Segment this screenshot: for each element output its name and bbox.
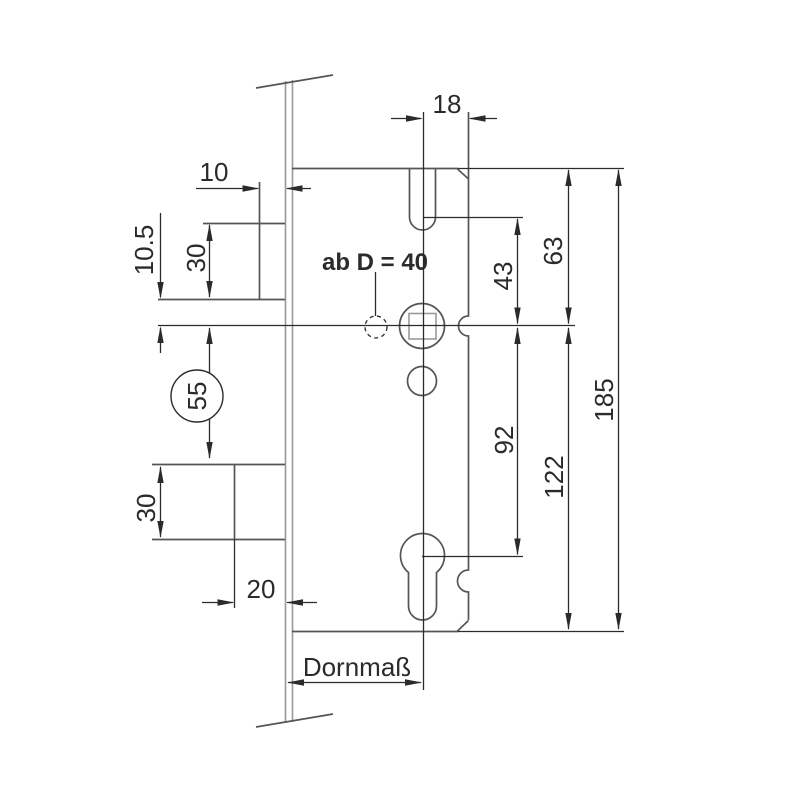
dim-label-43: 43 (488, 262, 518, 291)
case-right-edge (458, 112, 469, 620)
dashed-circle (365, 316, 387, 338)
follower (400, 304, 445, 396)
dim-backset: Dornmaß (287, 652, 422, 686)
dim-label-backset: Dornmaß (303, 652, 411, 682)
dim-10-5: 10.5 (129, 213, 164, 353)
cylinder-note-label: ab D = 40 (322, 249, 428, 276)
case-chamfer-bottom (457, 621, 469, 632)
dim-label-10-5: 10.5 (129, 225, 159, 276)
break-mark-top (256, 75, 333, 88)
dim-label-10: 10 (200, 157, 229, 187)
dim-185: 185 (589, 169, 622, 630)
dim-label-20: 20 (247, 574, 276, 604)
dim-label-18: 18 (433, 89, 462, 119)
dim-20: 20 (202, 574, 317, 606)
break-mark-bottom (256, 714, 333, 727)
dim-43: 43 (488, 218, 521, 325)
latch (158, 182, 285, 300)
cylinder-hole (401, 534, 445, 620)
dim-92: 92 (489, 327, 521, 556)
fixing-hole (408, 367, 437, 396)
dim-label-185: 185 (589, 378, 619, 421)
latch-notch (410, 169, 436, 230)
dim-label-55: 55 (182, 382, 212, 411)
deadbolt (152, 464, 285, 540)
dim-10: 10 (196, 157, 311, 192)
lock-dimension-drawing: 18 10 10.5 30 55 30 (0, 0, 800, 800)
lock-case (292, 112, 469, 632)
dim-label-122: 122 (539, 455, 569, 498)
case-chamfer-top (457, 169, 469, 180)
dim-18: 18 (391, 89, 497, 122)
dim-label-30-latch: 30 (181, 244, 211, 273)
dim-30-bolt: 30 (131, 466, 164, 538)
dim-30-latch: 30 (181, 224, 213, 298)
dim-63: 63 (538, 169, 572, 325)
dim-label-30-bolt: 30 (131, 494, 161, 523)
dim-122: 122 (539, 327, 572, 630)
drawing-canvas: 18 10 10.5 30 55 30 (0, 0, 800, 800)
spindle-square-hole (409, 314, 436, 340)
dim-label-92: 92 (489, 426, 519, 455)
dim-55: 55 (171, 327, 223, 459)
option-hole (365, 272, 387, 338)
dim-label-63: 63 (538, 237, 568, 266)
faceplate (256, 75, 333, 727)
